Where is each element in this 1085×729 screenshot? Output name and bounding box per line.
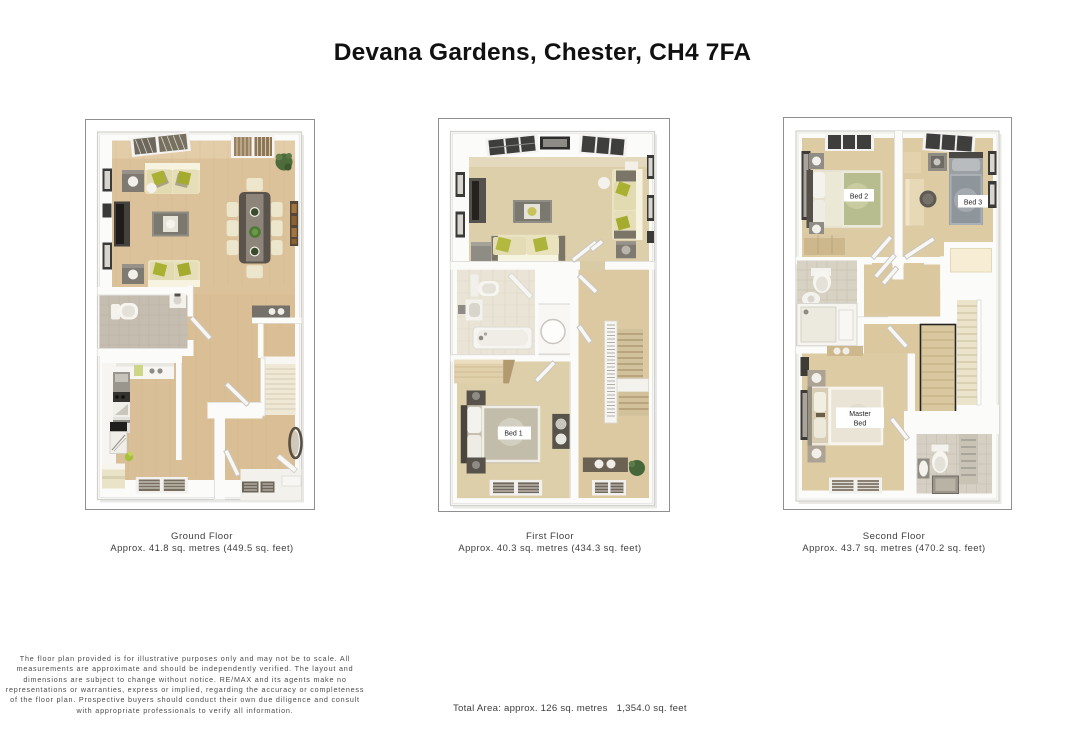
svg-text:Bed 1: Bed 1 (504, 430, 522, 437)
svg-text:Bed 2: Bed 2 (850, 193, 868, 200)
svg-text:Master: Master (849, 411, 871, 418)
svg-text:Bed: Bed (854, 421, 867, 428)
svg-text:Bed 3: Bed 3 (964, 199, 982, 206)
